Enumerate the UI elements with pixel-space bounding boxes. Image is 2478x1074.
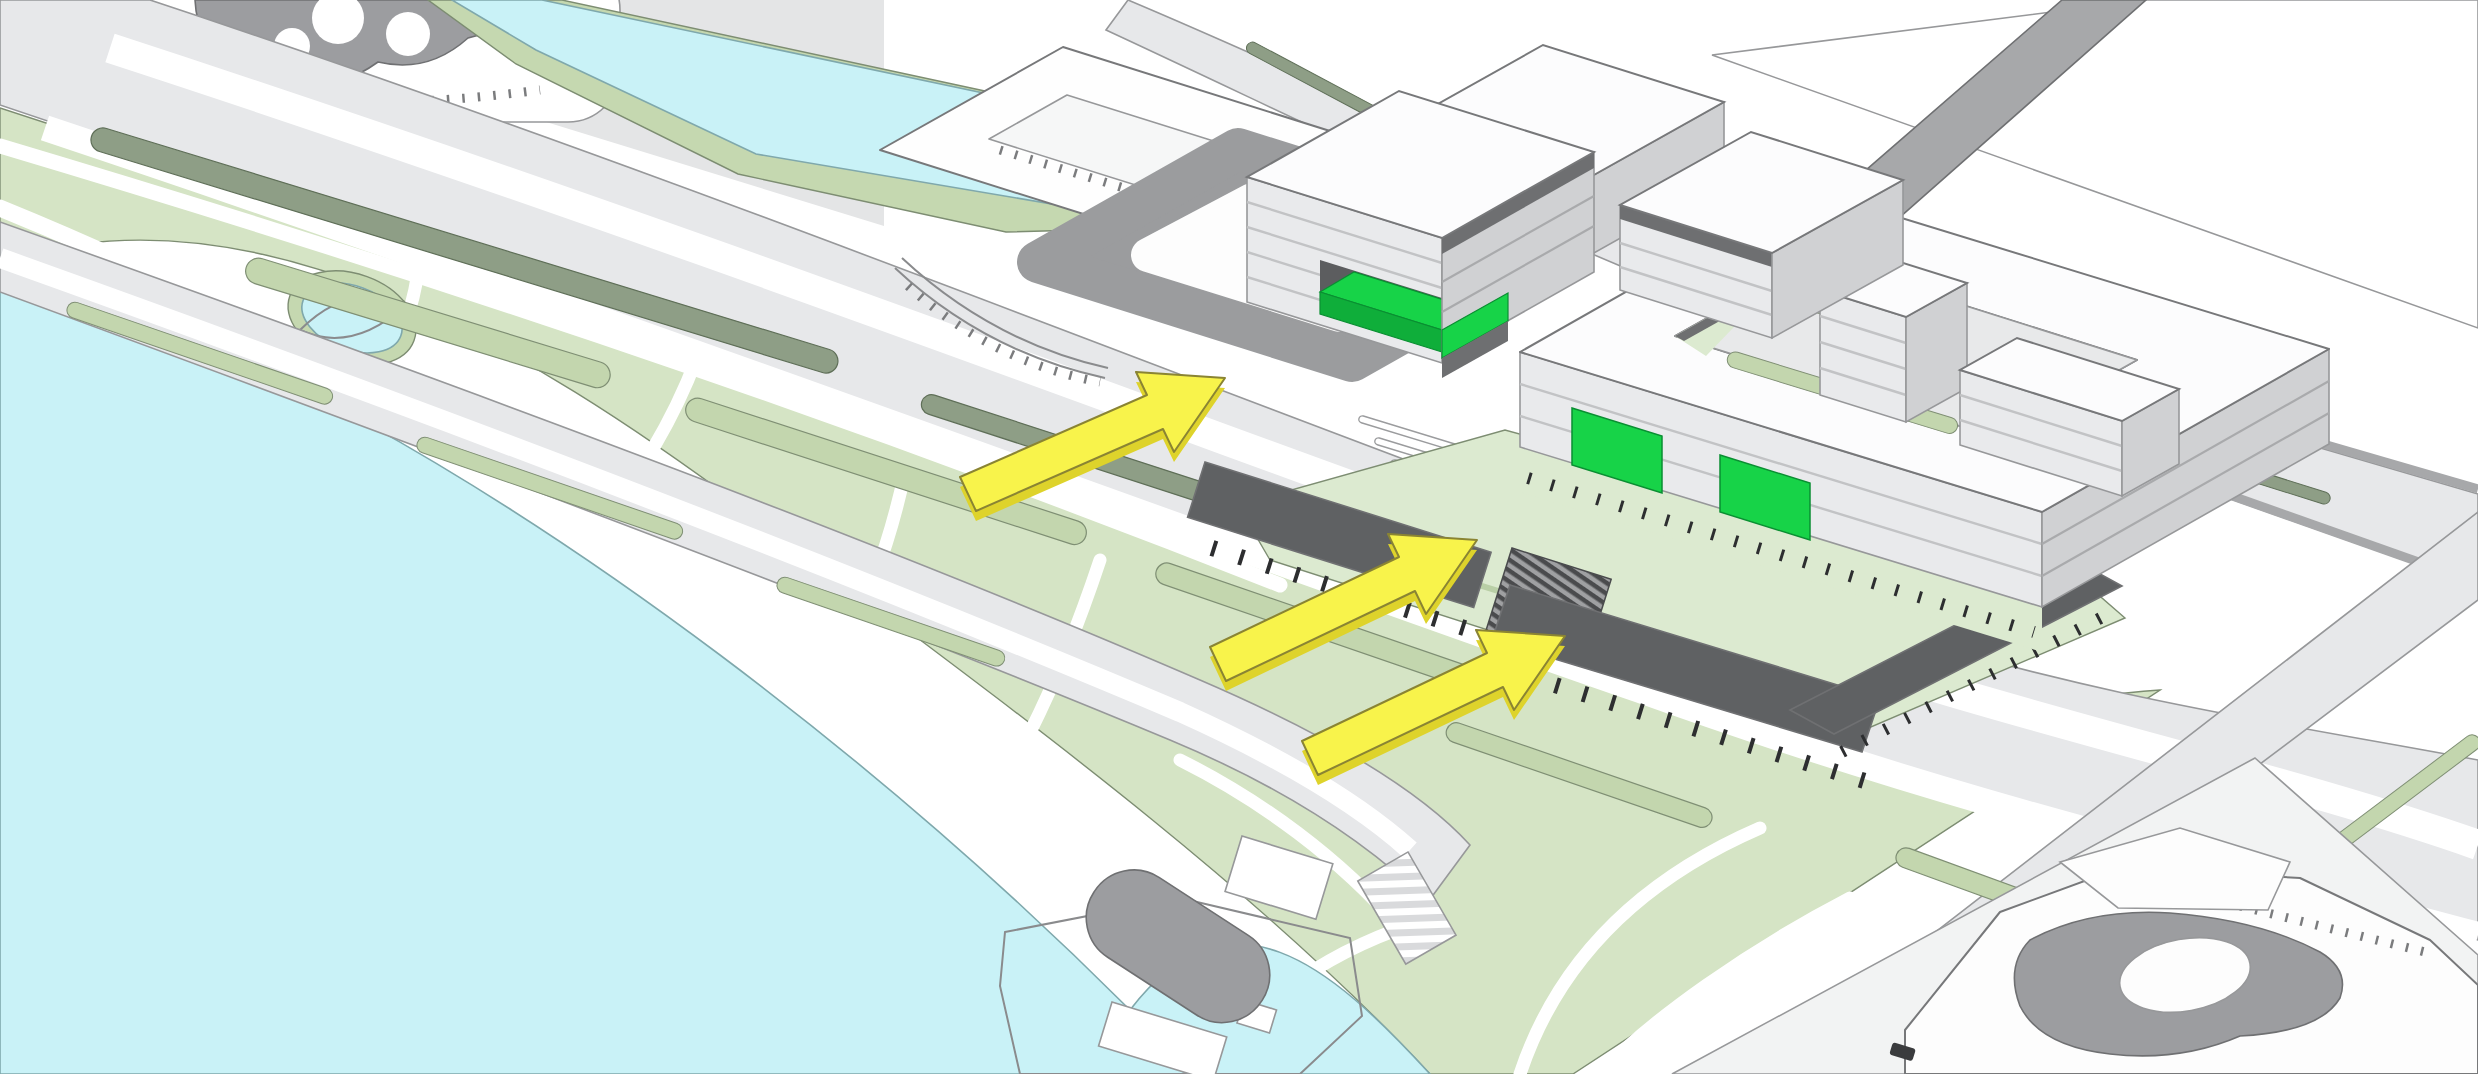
footprint-court-circle <box>386 12 430 56</box>
site-plan-stage <box>0 0 2478 1074</box>
axonometric-site-plan <box>0 0 2478 1074</box>
